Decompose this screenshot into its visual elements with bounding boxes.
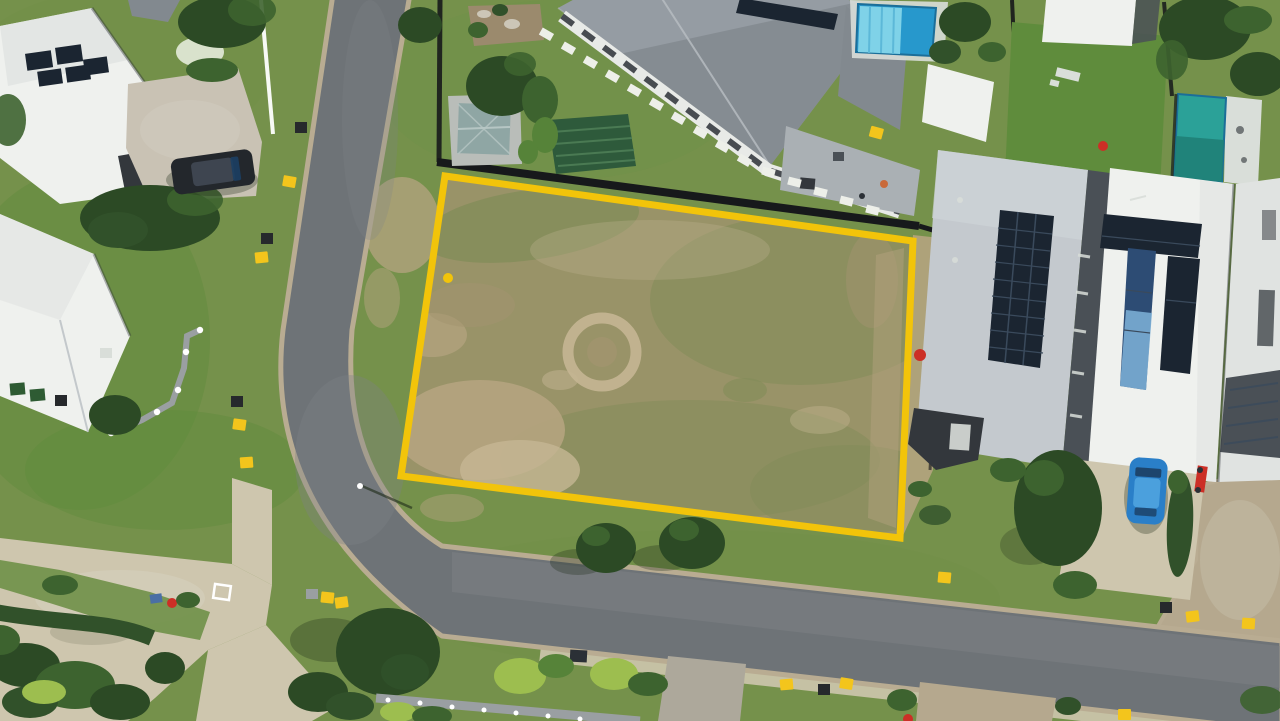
dark-bin [1160, 602, 1172, 613]
yellow-marker [232, 418, 246, 431]
motorbike-wheel [1195, 487, 1201, 493]
shrub [538, 654, 574, 678]
yellow-marker [1242, 618, 1256, 630]
green-wheelie-bin [30, 388, 46, 401]
fence-post [482, 708, 487, 713]
fence-post [418, 701, 423, 706]
dark-bin [818, 684, 830, 695]
play-equipment [150, 593, 163, 604]
green-wheelie-bin [10, 382, 26, 395]
solar-panel [55, 44, 83, 64]
dirt-speck [542, 370, 578, 390]
car-windshield [1135, 467, 1162, 478]
palm [518, 140, 538, 164]
dark-bin [231, 396, 243, 407]
dry-patch [530, 220, 770, 280]
dark-bin [261, 233, 273, 244]
garden-bush [978, 42, 1006, 62]
shrub-lime [494, 658, 546, 694]
tree-canopy [1224, 6, 1272, 34]
fence-post [546, 714, 551, 719]
tree-canopy [522, 76, 558, 124]
tree-canopy [504, 52, 536, 76]
car-rear-window [1134, 507, 1157, 517]
street-tree [669, 519, 699, 541]
shrub [145, 652, 185, 684]
pool-cover [858, 6, 902, 54]
utility-pit [570, 650, 588, 663]
side-road-highlight [1200, 500, 1280, 620]
red-object [914, 349, 926, 361]
grass-speck [723, 378, 767, 402]
solar-panel [25, 50, 53, 70]
bush [990, 458, 1026, 482]
window-glint [1074, 330, 1086, 332]
tree-canopy [381, 654, 429, 690]
motorbike-wheel [1197, 467, 1203, 473]
fence-post [514, 711, 519, 716]
bush [887, 689, 917, 711]
outdoor-furniture [800, 177, 816, 189]
wall-post [154, 409, 160, 415]
tree-canopy [89, 395, 141, 435]
window-glint [1072, 372, 1084, 374]
streetlight-pole [357, 483, 363, 489]
play-equipment [167, 598, 177, 608]
dark-bin [295, 122, 307, 133]
driveway-highlight [140, 100, 240, 160]
yellow-marker [1185, 610, 1199, 623]
roof-section [1132, 0, 1160, 44]
car-roof [1133, 477, 1161, 509]
dirt-patch [425, 283, 515, 327]
window-dark [1262, 210, 1276, 240]
aerial-photo [0, 0, 1280, 721]
pool-cover-stripe [893, 8, 894, 54]
roof-vent [952, 257, 958, 263]
bush [1055, 697, 1081, 715]
roof-vent [957, 197, 963, 203]
tree-canopy [398, 7, 442, 43]
bush [908, 481, 932, 497]
road-sheen [295, 375, 405, 545]
shrub [468, 22, 488, 38]
wall-post [175, 387, 181, 393]
blue-car [1126, 457, 1169, 525]
driveway-crossing [658, 656, 746, 721]
tree-canopy [1156, 40, 1188, 80]
window-glint [1070, 415, 1082, 417]
wall-post [183, 349, 189, 355]
large-tree [88, 212, 148, 248]
pool-deck [1224, 96, 1262, 186]
pool-cover-stripe [881, 7, 882, 53]
ac-unit [100, 348, 112, 358]
houses-right [908, 150, 1280, 482]
grey-bin [306, 589, 318, 599]
yellow-marker [240, 457, 254, 469]
yellow-marker [282, 175, 297, 188]
deck-item [1236, 126, 1244, 134]
window-glint [1078, 255, 1090, 257]
wall-post [197, 327, 203, 333]
road-sheen [342, 0, 398, 240]
garden-bush [929, 40, 961, 64]
bush [1053, 571, 1097, 599]
hedge-strip [1168, 470, 1188, 494]
window-dark [1257, 290, 1275, 347]
bush [919, 505, 951, 525]
tree-canopy [1024, 460, 1064, 496]
survey-marker-dot [443, 273, 453, 283]
yellow-marker [334, 596, 348, 609]
fence-post [386, 698, 391, 703]
hedge [326, 692, 374, 720]
yellow-marker [839, 677, 854, 690]
dirt-speck [790, 406, 850, 434]
yellow-marker [255, 251, 269, 263]
pool-cover-stripe [869, 7, 870, 53]
fence-post [450, 705, 455, 710]
garden-rock [477, 10, 491, 18]
yellow-marker [320, 591, 334, 603]
shrub [42, 575, 78, 595]
dark-bin [55, 395, 67, 406]
shrub [628, 672, 668, 696]
yellow-marker [937, 571, 951, 583]
yellow-marker [780, 678, 794, 690]
window-glint [1076, 292, 1088, 294]
outdoor-item [859, 193, 865, 199]
shrub [176, 592, 200, 608]
lap-pool-deep-end [1174, 136, 1224, 182]
street-tree [582, 526, 610, 546]
dirt-patch [364, 268, 400, 328]
cabana-roof [1042, 0, 1136, 46]
aerial-photo-canvas [0, 0, 1280, 721]
outdoor-furniture [833, 152, 844, 161]
shrub [90, 684, 150, 720]
shrub-lime [22, 680, 66, 704]
garden-pot [880, 180, 888, 188]
shrub [492, 4, 508, 16]
yellow-marker [1118, 709, 1131, 720]
garden-rock [504, 19, 520, 29]
dirt-patch [420, 494, 484, 522]
red-toy [1098, 141, 1108, 151]
garage-door [949, 423, 971, 450]
garden-bush [939, 2, 991, 42]
deck-item [1241, 157, 1247, 163]
hedge [186, 58, 238, 82]
bare-ring-centre [587, 337, 617, 367]
